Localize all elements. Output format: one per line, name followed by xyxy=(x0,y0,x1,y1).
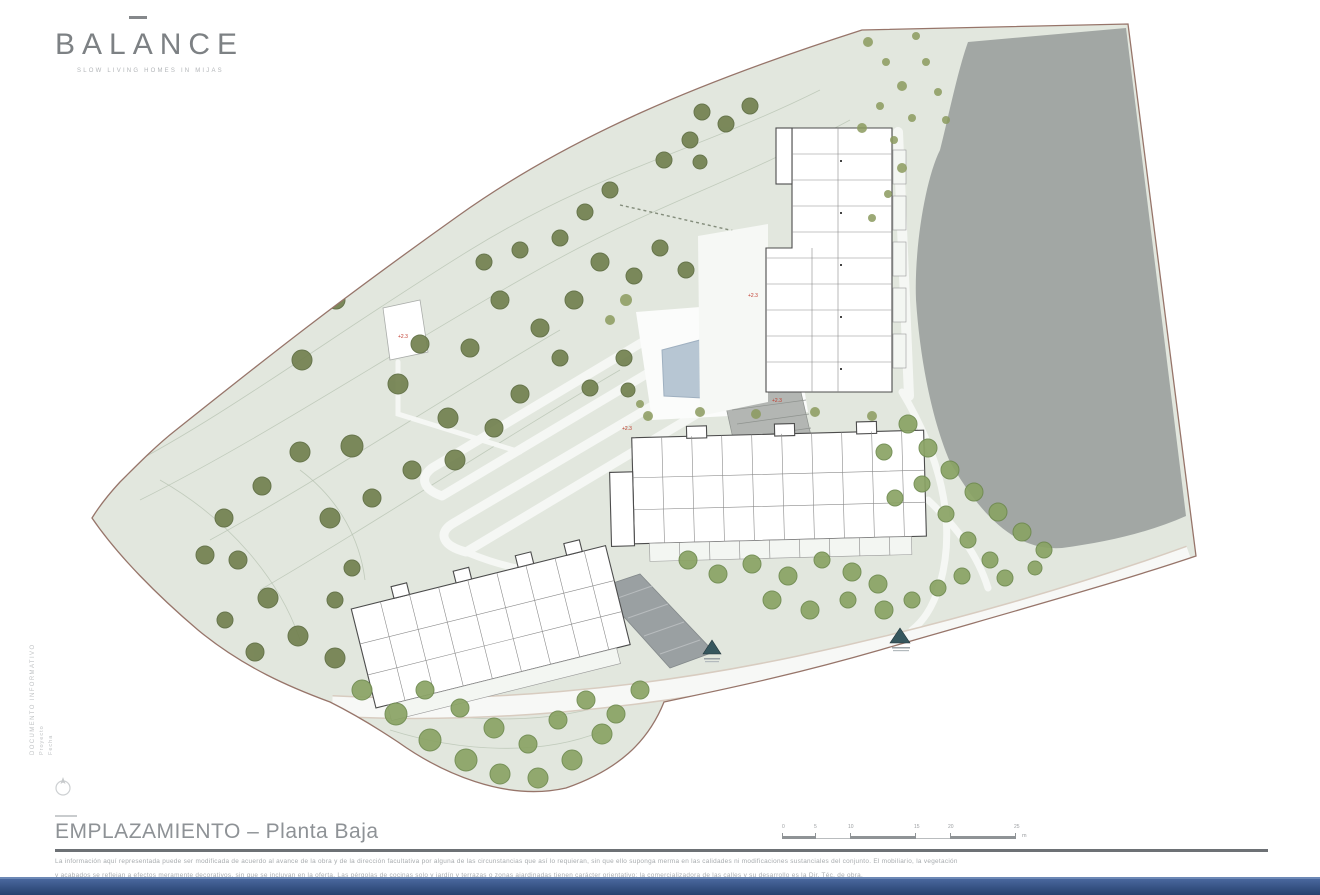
tree-icon xyxy=(934,88,942,96)
tree-icon xyxy=(899,415,917,433)
tree-icon xyxy=(814,552,830,568)
tree-icon xyxy=(388,374,408,394)
tree-icon xyxy=(751,409,761,419)
tree-icon xyxy=(912,32,920,40)
tree-icon xyxy=(416,681,434,699)
tree-icon xyxy=(801,601,819,619)
tree-icon xyxy=(942,116,950,124)
tree-icon xyxy=(1028,561,1042,575)
plaza xyxy=(698,224,768,416)
tree-icon xyxy=(385,703,407,725)
tree-icon xyxy=(491,291,509,309)
tree-icon xyxy=(484,718,504,738)
side-info-line1: DOCUMENTO INFORMATIVO xyxy=(30,610,36,755)
scale-segment xyxy=(816,833,850,839)
tree-icon xyxy=(914,476,930,492)
tree-icon xyxy=(562,750,582,770)
tree-icon xyxy=(325,648,345,668)
tree-icon xyxy=(552,230,568,246)
tree-icon xyxy=(196,546,214,564)
title-tick xyxy=(55,815,77,817)
scale-segment xyxy=(850,833,916,839)
tree-icon xyxy=(908,114,916,122)
tree-icon xyxy=(997,570,1013,586)
tree-icon xyxy=(965,483,983,501)
spot-elevation-label: +2.3 xyxy=(772,398,782,404)
tree-icon xyxy=(656,152,672,168)
scale-tick: 20 xyxy=(948,824,954,830)
title-block: EMPLAZAMIENTO – Planta Baja La informaci… xyxy=(55,815,1268,880)
scale-tick: 15 xyxy=(914,824,920,830)
tree-icon xyxy=(643,411,653,421)
scale-tick: 10 xyxy=(848,824,854,830)
bottom-accent-bar xyxy=(0,877,1320,895)
tree-icon xyxy=(875,601,893,619)
tree-icon xyxy=(1013,523,1031,541)
tree-icon xyxy=(636,400,644,408)
scale-bar: 0 5 10 15 20 25 m xyxy=(782,824,1068,839)
tree-icon xyxy=(292,350,312,370)
tree-icon xyxy=(485,419,503,437)
tree-icon xyxy=(591,253,609,271)
tree-icon xyxy=(938,506,954,522)
tree-icon xyxy=(605,315,615,325)
scale-unit: m xyxy=(1022,833,1027,839)
side-info-line2: Proyecto xyxy=(39,610,45,755)
tree-icon xyxy=(843,563,861,581)
scale-segment xyxy=(782,833,816,839)
tree-icon xyxy=(344,560,360,576)
logo: BALANCE SLOW LIVING HOMES IN MIJAS xyxy=(55,28,244,74)
disclaimer-line1: La información aquí representada puede s… xyxy=(55,857,1268,866)
tree-icon xyxy=(779,567,797,585)
tree-icon xyxy=(607,705,625,723)
tree-icon xyxy=(876,102,884,110)
tree-icon xyxy=(982,552,998,568)
apartment-block-center xyxy=(608,420,926,562)
tree-icon xyxy=(919,439,937,457)
tree-icon xyxy=(679,551,697,569)
tree-icon xyxy=(621,383,635,397)
logo-macron xyxy=(129,16,147,19)
scale-bar-segments: m xyxy=(782,831,1068,839)
scale-segment xyxy=(916,833,950,839)
scale-segment xyxy=(950,833,1016,839)
tree-icon xyxy=(1036,542,1052,558)
tree-icon xyxy=(602,182,618,198)
tree-icon xyxy=(403,461,421,479)
tree-icon xyxy=(411,335,429,353)
logo-tagline: SLOW LIVING HOMES IN MIJAS xyxy=(77,68,244,74)
tree-icon xyxy=(592,724,612,744)
tree-icon xyxy=(511,385,529,403)
scale-bar-ticks: 0 5 10 15 20 25 xyxy=(782,824,1068,831)
tree-icon xyxy=(552,350,568,366)
tree-icon xyxy=(887,490,903,506)
tree-icon xyxy=(810,407,820,417)
tree-icon xyxy=(742,98,758,114)
tree-icon xyxy=(884,190,892,198)
logo-text: BALANCE xyxy=(55,28,244,62)
tree-icon xyxy=(652,240,668,256)
tree-icon xyxy=(246,643,264,661)
tree-icon xyxy=(693,155,707,169)
tree-icon xyxy=(869,575,887,593)
tree-icon xyxy=(743,555,761,573)
tree-icon xyxy=(897,163,907,173)
scale-tick: 25 xyxy=(1014,824,1020,830)
tree-icon xyxy=(954,568,970,584)
tree-icon xyxy=(577,204,593,220)
tree-icon xyxy=(941,461,959,479)
tree-icon xyxy=(867,411,877,421)
scale-tick: 0 xyxy=(782,824,785,830)
tree-icon xyxy=(327,592,343,608)
spot-elevation-label: +2.3 xyxy=(398,334,408,340)
tree-icon xyxy=(989,503,1007,521)
tree-icon xyxy=(253,477,271,495)
tree-icon xyxy=(565,291,583,309)
tree-icon xyxy=(857,123,867,133)
tree-icon xyxy=(288,626,308,646)
tree-icon xyxy=(620,294,632,306)
tree-icon xyxy=(341,435,363,457)
tree-icon xyxy=(215,509,233,527)
tree-icon xyxy=(577,691,595,709)
sheet-title: EMPLAZAMIENTO – Planta Baja xyxy=(55,820,1268,844)
tree-icon xyxy=(840,592,856,608)
north-arrow-icon xyxy=(52,775,74,797)
tree-icon xyxy=(897,81,907,91)
tree-icon xyxy=(682,132,698,148)
tree-icon xyxy=(616,350,632,366)
tree-icon xyxy=(512,242,528,258)
tree-icon xyxy=(709,565,727,583)
apartment-block-north xyxy=(766,128,906,392)
tree-icon xyxy=(930,580,946,596)
site-plan: +2.3 +2.3 +2.3 +2.3 xyxy=(0,0,1320,815)
tree-icon xyxy=(678,262,694,278)
tree-icon xyxy=(257,321,279,343)
tree-icon xyxy=(694,104,710,120)
tree-icon xyxy=(763,591,781,609)
tree-icon xyxy=(290,442,310,462)
tree-icon xyxy=(363,489,381,507)
tree-icon xyxy=(476,254,492,270)
side-info-line3: Fecha xyxy=(48,610,54,755)
tree-icon xyxy=(445,450,465,470)
tree-icon xyxy=(631,681,649,699)
tree-icon xyxy=(718,116,734,132)
tree-icon xyxy=(890,136,898,144)
tree-icon xyxy=(863,37,873,47)
side-info-block: DOCUMENTO INFORMATIVO Proyecto Fecha xyxy=(30,610,54,755)
tree-icon xyxy=(868,214,876,222)
tree-icon xyxy=(960,532,976,548)
tree-icon xyxy=(882,58,890,66)
tree-icon xyxy=(455,749,477,771)
tree-icon xyxy=(451,699,469,717)
tree-icon xyxy=(626,268,642,284)
tree-icon xyxy=(876,444,892,460)
tree-icon xyxy=(490,764,510,784)
tree-icon xyxy=(217,612,233,628)
tree-icon xyxy=(582,380,598,396)
tree-icon xyxy=(904,592,920,608)
tree-icon xyxy=(419,729,441,751)
tree-icon xyxy=(519,735,537,753)
tree-icon xyxy=(438,408,458,428)
tree-icon xyxy=(352,680,372,700)
tree-icon xyxy=(531,319,549,337)
tree-icon xyxy=(549,711,567,729)
tree-icon xyxy=(695,407,705,417)
tree-icon xyxy=(229,551,247,569)
spot-elevation-label: +2.3 xyxy=(748,293,758,299)
title-rule xyxy=(55,849,1268,852)
tree-icon xyxy=(320,508,340,528)
spot-elevation-label: +2.3 xyxy=(622,426,632,432)
tree-icon xyxy=(461,339,479,357)
tree-icon xyxy=(258,588,278,608)
tree-icon xyxy=(528,768,548,788)
scale-tick: 5 xyxy=(814,824,817,830)
tree-icon xyxy=(922,58,930,66)
